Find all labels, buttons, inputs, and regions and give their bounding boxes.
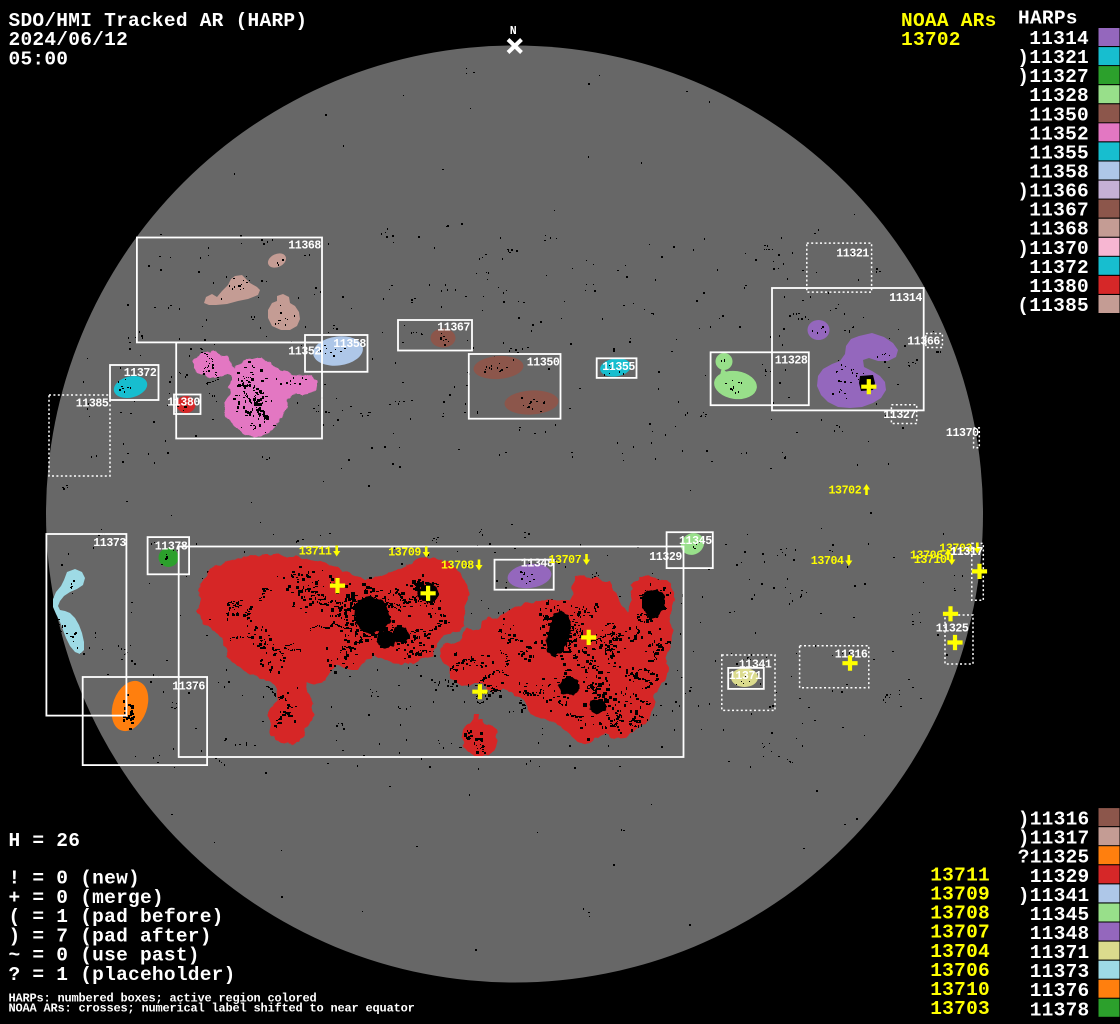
svg-text:11376: 11376 [172, 681, 205, 694]
svg-text:13708: 13708 [441, 560, 474, 573]
svg-text:? = 1 (placeholder): ? = 1 (placeholder) [9, 964, 236, 986]
svg-text:11370: 11370 [946, 427, 979, 440]
svg-text:13704: 13704 [811, 555, 844, 568]
svg-text:11366: 11366 [907, 336, 940, 349]
svg-text:11380: 11380 [167, 397, 200, 410]
svg-text:H = 26: H = 26 [9, 830, 81, 852]
svg-text:(11385: (11385 [1017, 295, 1089, 317]
svg-text:11341: 11341 [739, 659, 772, 672]
svg-text:11328: 11328 [775, 355, 808, 368]
svg-text:11325: 11325 [936, 623, 969, 636]
svg-text:11368: 11368 [288, 240, 321, 253]
svg-text:11345: 11345 [679, 535, 712, 548]
svg-text:11321: 11321 [836, 248, 869, 261]
svg-text:13702: 13702 [901, 29, 961, 51]
svg-text:11373: 11373 [93, 537, 126, 550]
svg-text:11350: 11350 [527, 357, 560, 370]
svg-text:05:00: 05:00 [9, 49, 69, 71]
svg-text:11372: 11372 [124, 367, 157, 380]
svg-text:13710: 13710 [914, 554, 947, 567]
svg-text:13711: 13711 [299, 546, 332, 559]
svg-text:11367: 11367 [437, 322, 470, 335]
svg-text:13707: 13707 [549, 554, 582, 567]
svg-text:11355: 11355 [602, 361, 635, 374]
svg-text:11371: 11371 [729, 670, 762, 683]
svg-text:N: N [510, 25, 517, 38]
svg-text:2024/06/12: 2024/06/12 [9, 29, 129, 51]
svg-text:NOAA ARs: crosses; numerical l: NOAA ARs: crosses; numerical label shift… [9, 1002, 415, 1016]
svg-text:13709: 13709 [388, 547, 421, 560]
svg-text:11385: 11385 [76, 398, 109, 411]
svg-text:11317: 11317 [950, 546, 983, 559]
svg-text:HARPs: HARPs [1018, 8, 1078, 30]
svg-text:11314: 11314 [889, 292, 922, 305]
svg-text:11378: 11378 [1030, 999, 1090, 1021]
svg-text:11327: 11327 [883, 409, 916, 422]
svg-text:11358: 11358 [333, 338, 366, 351]
svg-text:13702: 13702 [829, 485, 862, 498]
svg-text:13703: 13703 [930, 998, 990, 1020]
